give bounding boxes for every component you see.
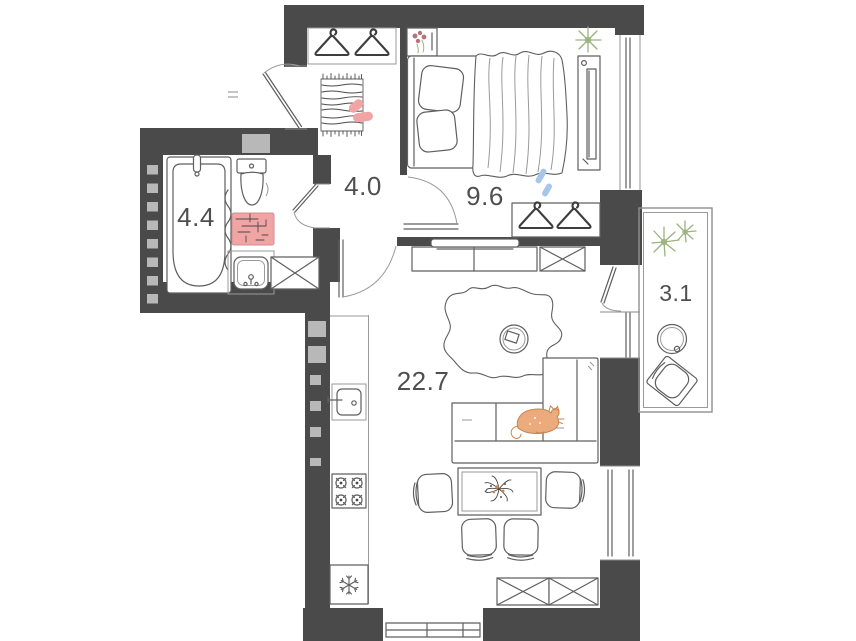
balcony-side-window — [600, 312, 640, 358]
wall-inset — [308, 346, 326, 363]
nightstand — [407, 28, 437, 56]
plant-icon — [576, 27, 601, 52]
coat-hanger-icon — [558, 202, 591, 228]
plant-icon — [652, 221, 696, 256]
living-right-window — [600, 466, 640, 560]
wall-segment — [287, 5, 640, 28]
room-area-label-balcony: 3.1 — [659, 280, 692, 306]
tv-icon — [431, 239, 519, 247]
fridge — [330, 565, 368, 604]
walls — [140, 5, 644, 641]
coat-hanger-icon — [520, 202, 553, 228]
bath-mat — [232, 213, 274, 245]
pillow — [417, 65, 464, 114]
room-area-label-hallway: 4.0 — [344, 171, 382, 201]
hallway — [308, 28, 396, 137]
tv-stand — [412, 239, 537, 271]
wall-inset — [147, 184, 158, 194]
wall-inset — [147, 276, 158, 286]
kitchen-counter — [330, 315, 369, 604]
wall-inset — [147, 202, 158, 212]
balcony — [639, 208, 712, 412]
wall-segment — [483, 608, 640, 641]
wall-inset — [310, 427, 321, 437]
wall-segment — [313, 155, 331, 184]
wall-inset — [310, 458, 321, 466]
dining-chair — [504, 519, 539, 561]
wall-inset — [242, 134, 270, 153]
hanger-closet — [512, 202, 600, 237]
washing-machine — [271, 257, 319, 289]
pillow — [416, 109, 458, 153]
dining-chair — [413, 473, 453, 513]
wall-segment — [600, 560, 640, 612]
dining-table — [413, 468, 586, 561]
wall-inset — [310, 401, 321, 411]
wall-inset — [308, 321, 326, 337]
blanket — [473, 51, 568, 177]
wall-segment — [615, 5, 644, 35]
wall-inset — [310, 375, 321, 385]
living-kitchen — [328, 239, 598, 605]
balcony-door — [601, 267, 621, 311]
room-area-label-bathroom: 4.4 — [177, 202, 215, 232]
round-table — [658, 325, 687, 354]
kitchen-sink — [328, 384, 366, 420]
room-area-label-bedroom: 9.6 — [466, 181, 504, 211]
floor-plan: 4.4 4.0 9.6 22.7 3.1 — [0, 0, 856, 641]
bedroom-door — [404, 177, 458, 229]
wall-inset — [147, 239, 158, 249]
storage-box — [540, 247, 585, 271]
room-area-label-living-kitchen: 22.7 — [397, 366, 450, 396]
living-room-door — [339, 240, 396, 297]
bathroom-door — [293, 184, 330, 228]
living-bottom-window — [386, 623, 480, 637]
wardrobe-panel — [578, 56, 600, 170]
double-bed — [408, 51, 568, 177]
coffee-table — [500, 325, 528, 353]
balcony-chair — [646, 355, 698, 406]
bedroom-window — [620, 35, 640, 190]
coat-hanger-icon — [356, 29, 389, 55]
wall-inset — [147, 221, 158, 231]
wall-segment — [400, 28, 407, 175]
entrance-door — [228, 64, 307, 129]
wall-segment — [600, 190, 642, 265]
coat-hanger-icon — [316, 29, 349, 55]
dining-chair — [461, 518, 496, 560]
wall-segment — [284, 5, 307, 67]
wall-segment — [140, 128, 318, 155]
wall-inset — [147, 258, 158, 268]
wall-inset — [147, 165, 158, 175]
wall-segment — [600, 358, 640, 466]
dining-chair — [545, 471, 585, 508]
storage-boxes — [497, 578, 598, 605]
wall-segment — [303, 608, 383, 641]
bedroom — [407, 27, 601, 237]
wall-inset — [147, 294, 158, 304]
stove — [332, 474, 366, 509]
floor-plan-drawing: 4.4 4.0 9.6 22.7 3.1 — [0, 0, 856, 641]
toilet — [237, 159, 268, 205]
